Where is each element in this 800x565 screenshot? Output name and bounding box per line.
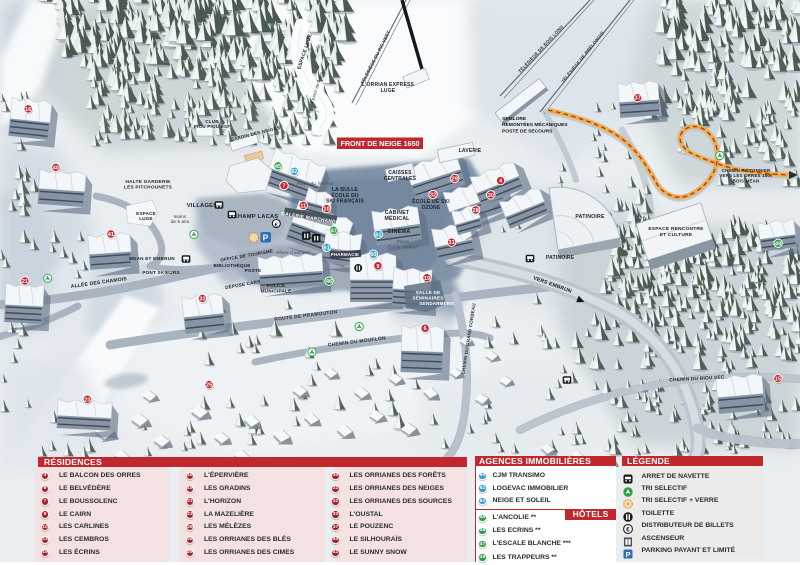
svg-text:P: P — [625, 550, 630, 559]
svg-text:€: € — [626, 526, 630, 533]
